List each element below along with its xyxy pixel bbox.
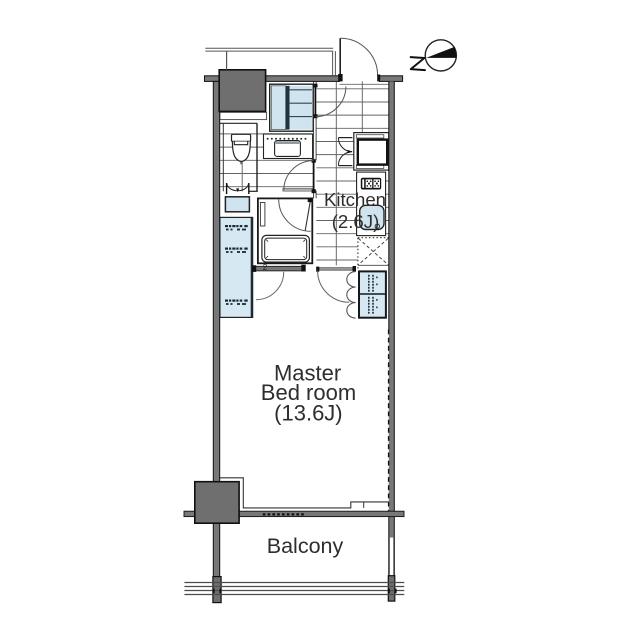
svg-text:Kitchen: Kitchen: [324, 189, 386, 210]
svg-text:(2.6J): (2.6J): [332, 211, 380, 232]
svg-text:(13.6J): (13.6J): [274, 401, 342, 426]
svg-text:2: 2: [263, 263, 268, 272]
svg-text:Balcony: Balcony: [267, 534, 344, 558]
